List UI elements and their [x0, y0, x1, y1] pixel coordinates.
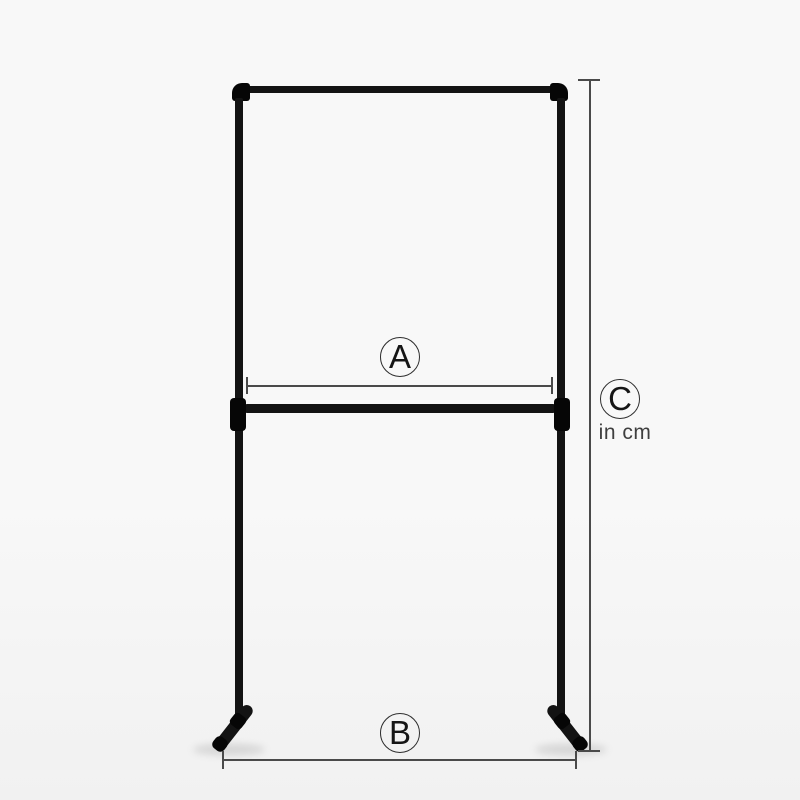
dimension-a-line [247, 385, 553, 387]
middle-rail-pipe [244, 404, 556, 413]
dimension-c-cap-bottom [578, 750, 600, 752]
dimension-a-letter: A [389, 340, 411, 373]
dimension-c-cap-top [578, 79, 600, 81]
dimension-c-letter: C [608, 382, 632, 415]
top-rail-pipe [244, 86, 556, 93]
dimension-c-line [589, 80, 591, 752]
dimension-a-tick-right [551, 377, 553, 394]
dimension-b-tick-right [575, 751, 577, 769]
dimension-a-tick-left [246, 377, 248, 394]
dimension-a-label: A [380, 337, 420, 377]
dimension-b-tick-left [222, 751, 224, 769]
dimension-b-letter: B [389, 716, 411, 749]
dimension-c-label: C [600, 379, 640, 419]
left-foot-shadow [193, 744, 265, 755]
unit-note: in cm [585, 421, 665, 445]
dimension-b-line [223, 759, 577, 761]
middle-right-tee-fitting [554, 398, 570, 431]
product-dimension-diagram: A B C in cm [0, 0, 800, 800]
middle-left-tee-fitting [230, 398, 246, 431]
dimension-b-label: B [380, 713, 420, 753]
